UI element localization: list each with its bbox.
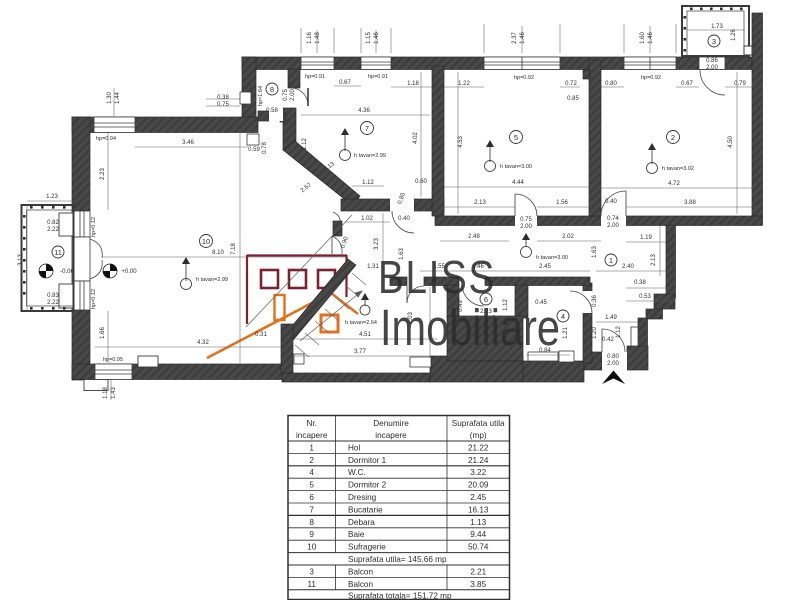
svg-text:0.31: 0.31 [255,332,267,338]
svg-text:5: 5 [309,481,314,490]
svg-text:7.18: 7.18 [231,243,237,255]
svg-text:1.46: 1.46 [374,32,380,44]
svg-text:0.42: 0.42 [602,337,614,343]
svg-text:hp=0.94: hp=0.94 [96,136,116,142]
svg-text:hp=0.12: hp=0.12 [91,289,97,309]
svg-text:4.02: 4.02 [413,132,419,144]
svg-text:0.38: 0.38 [217,95,229,101]
svg-text:4.72: 4.72 [668,181,680,187]
svg-text:2.45: 2.45 [470,493,486,502]
svg-text:10: 10 [202,237,210,246]
svg-text:8: 8 [270,85,274,94]
svg-text:0.59: 0.59 [248,147,260,153]
svg-text:0.40: 0.40 [398,216,410,222]
svg-text:21.24: 21.24 [468,456,489,465]
svg-text:h tavan=2.99: h tavan=2.99 [354,153,386,159]
svg-text:0.86: 0.86 [706,58,718,64]
svg-text:0.67: 0.67 [681,81,693,87]
svg-text:Sufragerie: Sufragerie [348,543,386,552]
svg-text:3.85: 3.85 [470,580,486,589]
svg-text:(mp): (mp) [470,431,487,440]
svg-text:1.12: 1.12 [616,326,622,338]
svg-text:1: 1 [309,443,314,452]
svg-text:1: 1 [609,256,613,265]
svg-text:+0.00: +0.00 [121,269,137,275]
svg-text:0.75: 0.75 [283,89,289,101]
svg-text:BLISS: BLISS [378,251,496,303]
svg-text:incapere: incapere [296,431,328,440]
svg-text:1.43: 1.43 [111,387,117,399]
svg-text:0.80: 0.80 [605,81,617,87]
svg-text:Dresing: Dresing [348,493,377,502]
svg-text:4.32: 4.32 [197,340,209,346]
svg-text:2.22: 2.22 [47,300,59,306]
svg-text:Suprafata totala= 151.72 mp: Suprafata totala= 151.72 mp [348,591,452,600]
svg-text:21.22: 21.22 [468,443,489,452]
svg-text:2: 2 [671,133,675,142]
svg-text:Balcon: Balcon [348,567,373,576]
svg-text:2.13: 2.13 [474,200,486,206]
svg-text:0.78: 0.78 [262,142,268,154]
svg-text:1.73: 1.73 [711,24,723,30]
svg-text:1.46: 1.46 [648,32,654,44]
svg-text:9: 9 [309,530,314,539]
svg-text:11: 11 [54,248,62,257]
svg-text:1.12: 1.12 [302,138,308,150]
svg-text:0.36: 0.36 [592,295,598,307]
svg-text:Hol: Hol [348,443,360,452]
svg-text:Denumire: Denumire [373,419,409,428]
svg-text:1.16: 1.16 [307,32,313,44]
svg-text:1.18: 1.18 [407,81,419,87]
svg-text:2.21: 2.21 [470,567,486,576]
svg-text:1.46: 1.46 [520,32,526,44]
svg-text:0.74: 0.74 [607,216,619,222]
svg-text:0.82: 0.82 [47,220,59,226]
svg-text:2.00: 2.00 [290,89,296,101]
svg-text:4.50: 4.50 [728,136,734,148]
svg-text:Imobiliare: Imobiliare [380,299,560,356]
svg-text:3: 3 [309,567,314,576]
svg-text:3.13: 3.13 [18,254,24,266]
svg-text:1.44: 1.44 [115,92,121,104]
svg-text:3: 3 [712,37,716,46]
svg-text:2.37: 2.37 [512,32,518,44]
svg-text:2.00: 2.00 [706,65,718,71]
svg-text:Nr.: Nr. [306,419,316,428]
svg-text:8.10: 8.10 [212,250,224,256]
svg-text:W.C.: W.C. [348,468,366,477]
svg-text:0.79: 0.79 [734,81,746,87]
svg-text:1.18: 1.18 [103,387,109,399]
svg-text:1.13: 1.13 [470,518,486,527]
svg-text:4: 4 [561,312,565,321]
svg-text:-0.06: -0.06 [60,269,74,275]
svg-text:0.83: 0.83 [47,293,59,299]
svg-text:hp=0.92: hp=0.92 [514,75,534,81]
svg-text:6: 6 [309,493,314,502]
svg-text:1.21: 1.21 [563,327,569,339]
svg-text:9.44: 9.44 [470,530,486,539]
svg-text:2.13: 2.13 [651,254,657,266]
svg-text:50.74: 50.74 [468,543,489,552]
svg-text:1.56: 1.56 [556,200,568,206]
svg-text:Suprafata utila= 145.66 mp: Suprafata utila= 145.66 mp [348,555,447,564]
svg-text:h tavan=3.00: h tavan=3.00 [536,255,568,261]
svg-text:1.20: 1.20 [592,327,598,339]
svg-text:hp=0.91: hp=0.91 [368,74,388,80]
svg-text:1.30: 1.30 [107,92,113,104]
svg-text:hp=0.95: hp=0.95 [103,357,123,363]
svg-text:3.46: 3.46 [182,140,194,146]
svg-text:1.48: 1.48 [315,32,321,44]
svg-text:0.40: 0.40 [605,199,617,205]
svg-text:10: 10 [307,543,317,552]
svg-text:2.40: 2.40 [622,264,634,270]
svg-text:3.77: 3.77 [354,349,366,355]
svg-text:20.09: 20.09 [468,481,489,490]
svg-text:1.22: 1.22 [458,81,470,87]
svg-text:0.72: 0.72 [565,81,577,87]
svg-text:h tavan=3.00: h tavan=3.00 [500,164,532,170]
svg-text:0.75: 0.75 [520,217,532,223]
svg-text:0.80: 0.80 [607,354,619,360]
svg-text:11: 11 [307,580,316,589]
svg-text:Bucatarie: Bucatarie [348,505,383,514]
svg-text:h tavan=2.64: h tavan=2.64 [345,320,377,326]
svg-text:Baie: Baie [348,530,365,539]
svg-text:4.53: 4.53 [458,136,464,148]
svg-text:1.19: 1.19 [640,235,652,241]
svg-text:Suprafata utila: Suprafata utila [452,419,505,428]
svg-text:1.63: 1.63 [592,246,598,258]
svg-text:Dormitor 2: Dormitor 2 [348,481,387,490]
svg-text:1.66: 1.66 [100,327,106,339]
svg-text:0.58: 0.58 [266,108,278,114]
svg-text:4.36: 4.36 [358,108,370,114]
svg-text:0.60: 0.60 [415,179,427,185]
svg-text:1.12: 1.12 [362,180,374,186]
svg-text:0.85: 0.85 [567,96,579,102]
svg-text:4.44: 4.44 [512,180,524,186]
svg-text:7: 7 [309,505,314,514]
svg-text:1.49: 1.49 [605,315,617,321]
svg-text:0.75: 0.75 [217,102,229,108]
svg-text:2: 2 [309,456,314,465]
svg-text:7: 7 [365,124,369,133]
svg-text:1.23: 1.23 [46,194,58,200]
svg-text:8: 8 [309,518,314,527]
svg-text:4: 4 [309,468,314,477]
svg-text:Dormitor 1: Dormitor 1 [348,456,387,465]
svg-text:h tavan=3.02: h tavan=3.02 [662,166,694,172]
svg-text:3.23: 3.23 [374,238,380,250]
svg-text:Balcon: Balcon [348,580,373,589]
svg-text:hp=0.12: hp=0.12 [91,217,97,237]
svg-text:incapere: incapere [375,431,407,440]
svg-text:hp=1.64: hp=1.64 [258,86,264,106]
svg-text:3.88: 3.88 [684,200,696,206]
svg-text:1.60: 1.60 [640,32,646,44]
svg-text:16.13: 16.13 [468,505,489,514]
svg-text:0.53: 0.53 [639,294,651,300]
svg-text:Debara: Debara [348,518,375,527]
svg-text:0.38: 0.38 [634,280,646,286]
svg-text:2.48: 2.48 [468,234,480,240]
svg-text:1.15: 1.15 [366,32,372,44]
svg-text:2.00: 2.00 [607,223,619,229]
svg-text:hp=0.91: hp=0.91 [305,74,325,80]
svg-text:5: 5 [514,133,518,142]
svg-text:2.00: 2.00 [520,224,532,230]
svg-text:2.02: 2.02 [562,234,574,240]
svg-text:4.51: 4.51 [359,332,371,338]
svg-text:h tavan=2.99: h tavan=2.99 [196,277,228,283]
svg-text:1.26: 1.26 [731,29,737,41]
svg-text:hp=0.92: hp=0.92 [641,75,661,81]
svg-text:2.23: 2.23 [100,168,106,180]
svg-text:2.22: 2.22 [47,227,59,233]
svg-text:1.02: 1.02 [361,216,373,222]
svg-text:0.67: 0.67 [339,80,351,86]
svg-text:2.45: 2.45 [539,264,551,270]
svg-text:3.22: 3.22 [470,468,486,477]
svg-text:2.00: 2.00 [607,361,619,367]
